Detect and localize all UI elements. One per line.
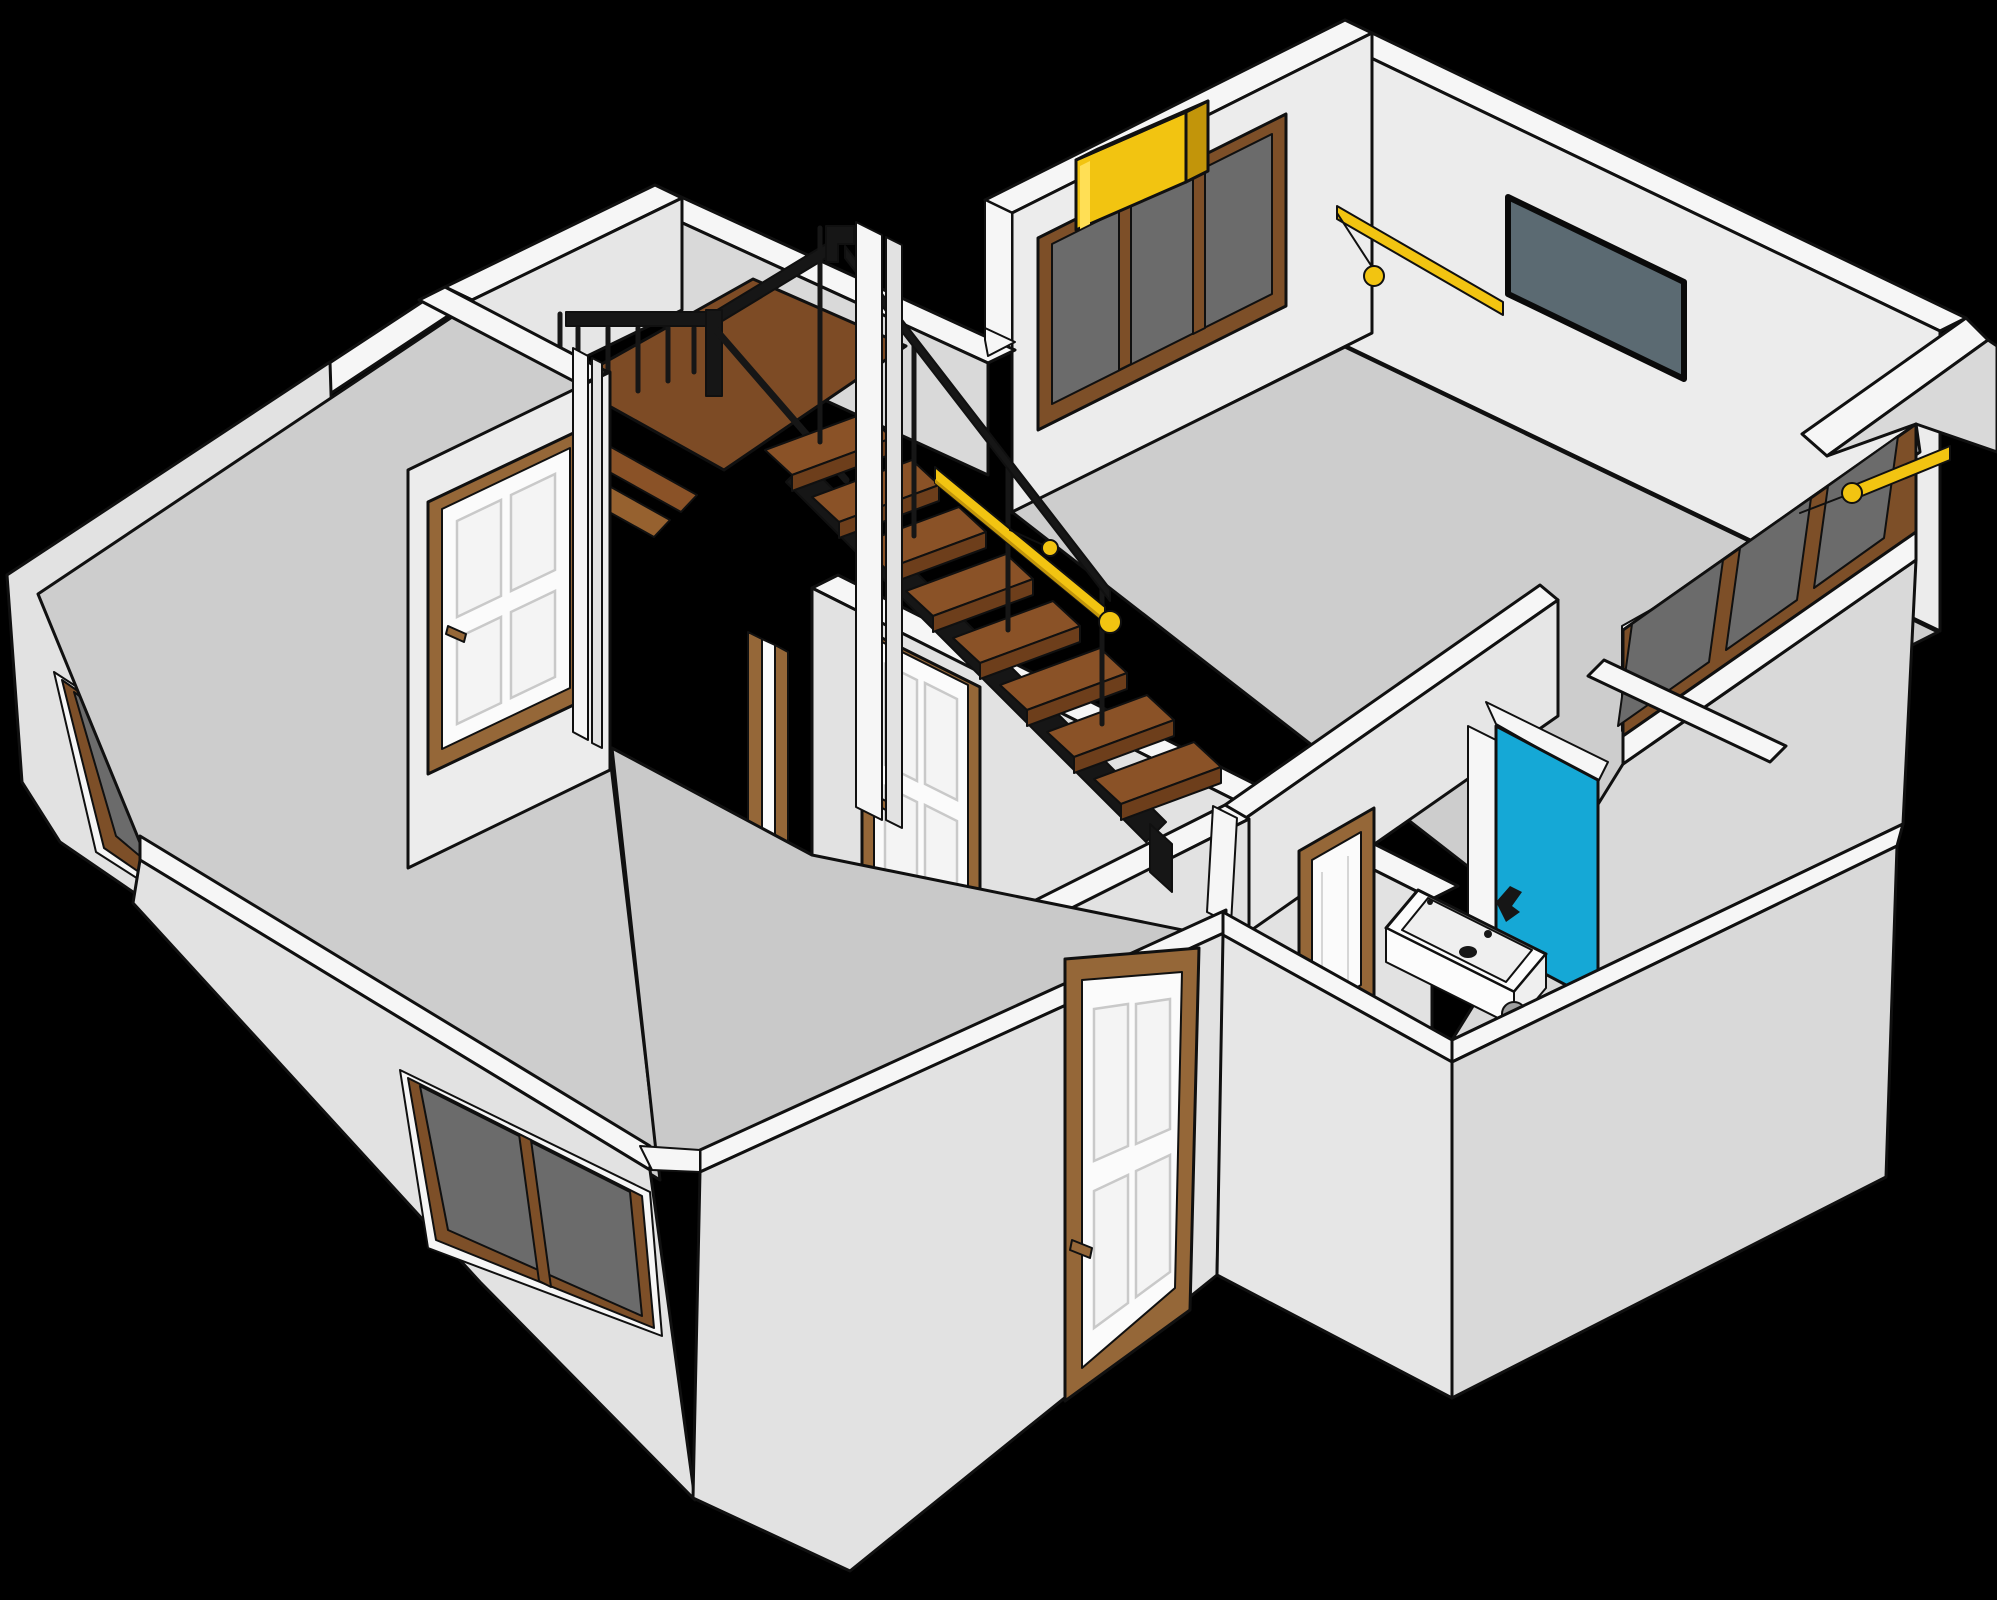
door-edge-leaf <box>762 639 775 851</box>
house-cutaway-illustration <box>0 0 1997 1600</box>
pull-ring <box>1364 266 1384 286</box>
door-panel <box>1136 999 1170 1144</box>
door-panel <box>925 683 957 800</box>
stairwell-wall-edge <box>886 237 902 828</box>
ac-side <box>1186 101 1208 182</box>
door-panel <box>1094 1004 1128 1161</box>
door-edge-frame <box>775 645 788 858</box>
door-edge-frame <box>748 632 762 852</box>
sink-drain <box>1459 946 1477 958</box>
window-mullion <box>1193 168 1205 334</box>
illustration-canvas <box>0 0 1997 1600</box>
door-panel <box>1094 1175 1128 1328</box>
sink-hole <box>1427 899 1433 905</box>
handrail <box>566 312 714 326</box>
wall-end-edge <box>592 358 602 748</box>
door-panel <box>457 500 501 617</box>
window-mullion <box>1119 204 1131 370</box>
newel-post <box>706 310 722 396</box>
rail-cap <box>1099 611 1121 633</box>
wall-end-edge <box>573 348 588 740</box>
bedroom <box>7 287 695 1500</box>
wall-end-edge <box>1207 806 1237 924</box>
door-panel <box>1136 1155 1170 1297</box>
exterior-door <box>1065 948 1199 1401</box>
ac-highlight <box>1080 161 1090 229</box>
rail-knob <box>1042 540 1058 556</box>
rod-cap <box>1842 483 1862 503</box>
stairwell-wall-edge <box>856 222 882 820</box>
door-panel <box>511 474 555 591</box>
sink-hole <box>1484 930 1492 938</box>
